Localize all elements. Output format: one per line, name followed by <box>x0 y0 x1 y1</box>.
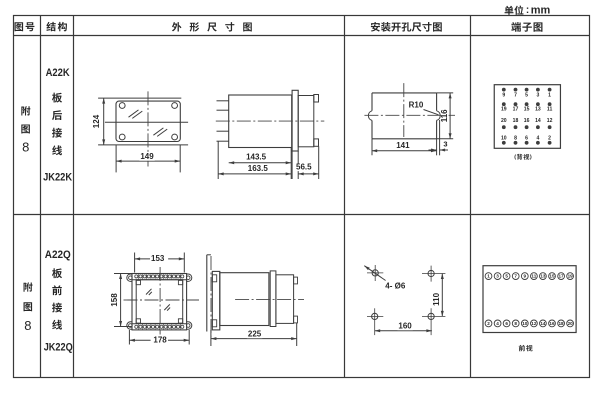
svg-text:110: 110 <box>432 292 441 305</box>
svg-text:13: 13 <box>535 107 541 113</box>
svg-text:11: 11 <box>547 107 553 113</box>
svg-text:15: 15 <box>524 107 530 113</box>
svg-text:19: 19 <box>568 274 574 279</box>
svg-text:225: 225 <box>248 330 262 339</box>
svg-text:4- Ø6: 4- Ø6 <box>385 281 406 290</box>
svg-text:18: 18 <box>558 321 564 326</box>
svg-text:14: 14 <box>535 118 541 124</box>
svg-text:17: 17 <box>513 107 519 113</box>
svg-text:A22K: A22K <box>46 67 70 79</box>
svg-text:56.5: 56.5 <box>296 162 312 171</box>
svg-text:8: 8 <box>24 318 31 333</box>
svg-text:3: 3 <box>443 139 447 148</box>
svg-text:158: 158 <box>110 293 119 307</box>
svg-text:8: 8 <box>22 139 29 154</box>
svg-text:9: 9 <box>502 93 505 99</box>
svg-text:2: 2 <box>548 136 551 142</box>
svg-text:7: 7 <box>514 274 517 279</box>
svg-text:141: 141 <box>396 141 410 150</box>
svg-text:4: 4 <box>496 321 499 326</box>
svg-text:178: 178 <box>153 335 167 344</box>
svg-text:JK22K: JK22K <box>43 172 72 184</box>
svg-text:12: 12 <box>547 118 553 124</box>
svg-text:10: 10 <box>501 136 507 142</box>
svg-text:124: 124 <box>92 114 101 128</box>
svg-text:3: 3 <box>496 274 499 279</box>
svg-text::: : <box>526 5 529 16</box>
svg-text:1: 1 <box>487 274 490 279</box>
svg-text:5: 5 <box>525 93 528 99</box>
svg-text:163.5: 163.5 <box>248 164 269 173</box>
svg-text:18: 18 <box>513 118 519 124</box>
svg-text:14: 14 <box>540 321 546 326</box>
svg-text:8: 8 <box>514 321 517 326</box>
svg-text:15: 15 <box>549 274 555 279</box>
svg-text:R10: R10 <box>409 101 424 110</box>
svg-text:6: 6 <box>525 136 528 142</box>
svg-text:): ) <box>530 155 532 161</box>
svg-text:1: 1 <box>548 93 551 99</box>
svg-text:A22Q: A22Q <box>45 249 71 261</box>
svg-text:19: 19 <box>501 107 507 113</box>
svg-text:20: 20 <box>501 118 507 124</box>
svg-text:3: 3 <box>536 93 539 99</box>
svg-text:6: 6 <box>505 321 508 326</box>
svg-text:JK22Q: JK22Q <box>44 342 73 354</box>
svg-text:mm: mm <box>531 5 551 17</box>
svg-text:7: 7 <box>514 93 517 99</box>
svg-text:5: 5 <box>505 274 508 279</box>
svg-text:149: 149 <box>140 152 154 161</box>
svg-text:10: 10 <box>522 321 528 326</box>
svg-text:17: 17 <box>558 274 564 279</box>
svg-text:12: 12 <box>531 321 537 326</box>
svg-text:(: ( <box>514 155 516 161</box>
svg-text:143.5: 143.5 <box>246 153 267 162</box>
svg-text:13: 13 <box>540 274 546 279</box>
svg-text:2: 2 <box>487 321 490 326</box>
svg-text:9: 9 <box>523 274 526 279</box>
svg-text:11: 11 <box>531 274 536 279</box>
svg-text:16: 16 <box>549 321 555 326</box>
svg-text:4: 4 <box>536 136 539 142</box>
svg-text:153: 153 <box>151 254 165 263</box>
svg-text:160: 160 <box>398 322 412 331</box>
svg-text:16: 16 <box>524 118 530 124</box>
svg-text:20: 20 <box>568 321 574 326</box>
svg-text:8: 8 <box>514 136 517 142</box>
svg-text:116: 116 <box>440 109 449 122</box>
